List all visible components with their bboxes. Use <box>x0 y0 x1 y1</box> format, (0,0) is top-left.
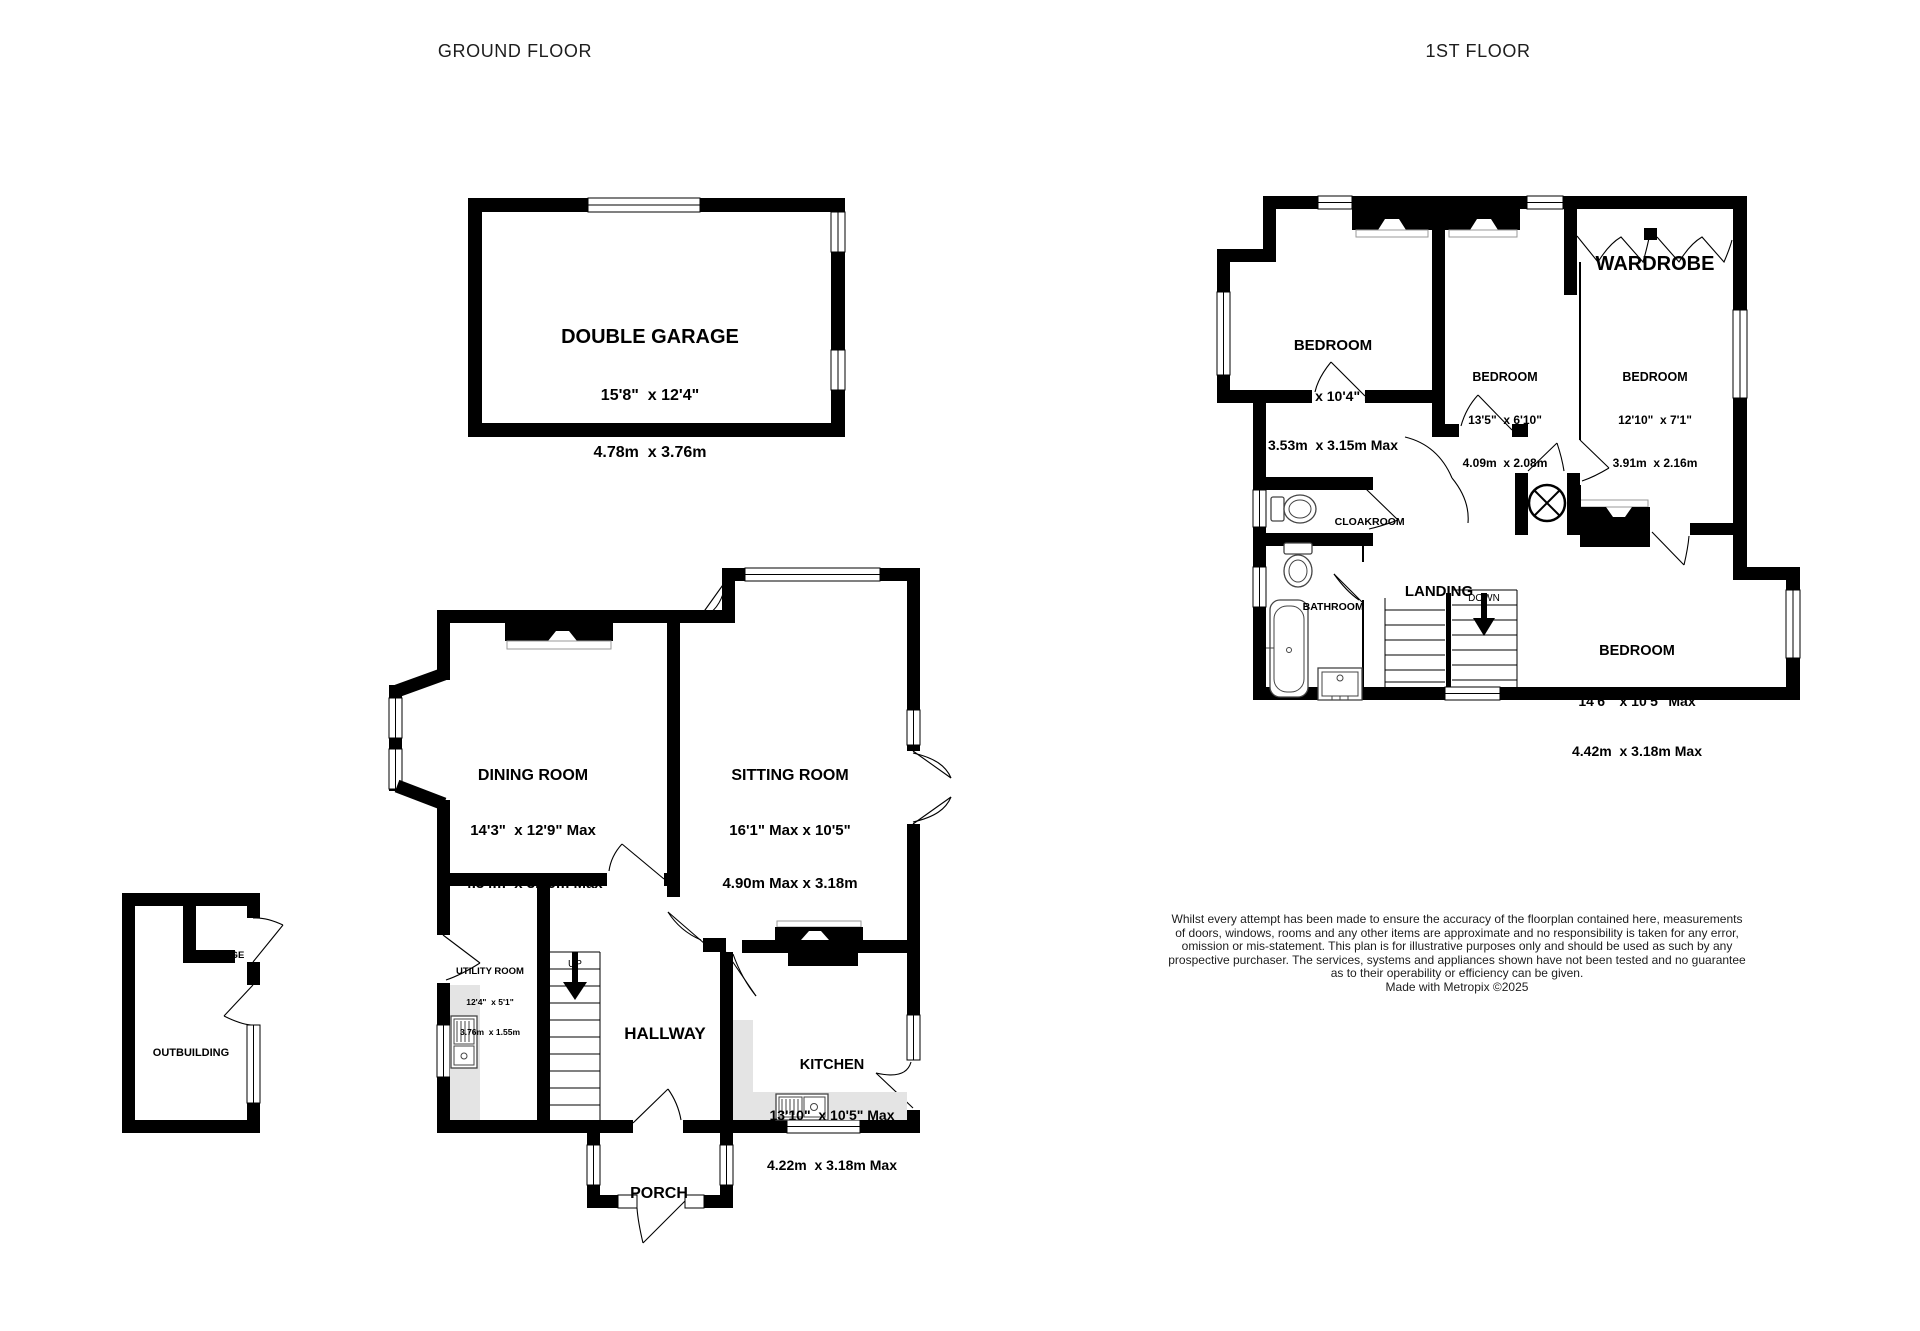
bedroom-2-label: BEDROOM 13'5" x 6'10" 4.09m x 2.08m <box>1463 342 1548 498</box>
disclaimer-line: as to their operability or efficiency ca… <box>1087 967 1827 981</box>
garage-metric: 4.78m x 3.76m <box>561 444 739 463</box>
bathroom-label: BATHROOM <box>1291 589 1364 625</box>
garage-imperial: 15'8" x 12'4" <box>561 387 739 406</box>
utility-room-label: UTILITY ROOM 12'4" x 5'1" 3.76m x 1.55m <box>456 946 524 1057</box>
bathroom-basin <box>1318 668 1362 700</box>
porch-label: PORCH <box>630 1147 688 1241</box>
bedroom-1-label: BEDROOM 11'7" x 10'4" Max 3.53m x 3.15m … <box>1268 304 1398 487</box>
bedroom-3-label: BEDROOM 12'10" x 7'1" 3.91m x 2.16m <box>1613 342 1698 498</box>
stairs-up-label: UP <box>568 935 582 994</box>
outbuilding-label: OUTBUILDING <box>153 1021 229 1086</box>
floorplan-page: GROUND FLOOR 1ST FLOOR DOUBLE GARAGE 15'… <box>0 0 1920 1331</box>
garage-name: DOUBLE GARAGE <box>561 326 739 350</box>
landing-chimney-breast <box>1578 507 1650 523</box>
bedroom-chimney-breast <box>1352 209 1520 230</box>
bathroom-toilet <box>1284 543 1312 587</box>
wardrobe-label: WARDROBE <box>1596 206 1715 324</box>
hallway-label: HALLWAY <box>624 984 706 1084</box>
dining-chimney-breast <box>505 623 613 641</box>
disclaimer-credit: Made with Metropix ©2025 <box>1087 981 1827 995</box>
dining-room-label: DINING ROOM 14'3" x 12'9" Max 4.34m x 3.… <box>463 732 602 928</box>
disclaimer-line: Whilst every attempt has been made to en… <box>1087 913 1827 927</box>
disclaimer-line: prospective purchaser. The services, sys… <box>1087 954 1827 968</box>
garage-label: DOUBLE GARAGE 15'8" x 12'4" 4.78m x 3.76… <box>561 288 739 500</box>
cloakroom-label: CLOAKROOM <box>1323 504 1405 540</box>
first-floor-title: 1ST FLOOR <box>1425 41 1530 62</box>
disclaimer-line: omission or mis-statement. This plan is … <box>1087 940 1827 954</box>
sitting-room-label: SITTING ROOM 16'1" Max x 10'5" 4.90m Max… <box>722 732 857 928</box>
cloakroom-toilet <box>1271 495 1316 523</box>
storage-label: STORAGE <box>198 928 245 984</box>
landing-label: LANDING <box>1405 548 1473 636</box>
kitchen-label: KITCHEN 13'10" x 10'5" Max 4.22m x 3.18m… <box>767 1024 897 1206</box>
ground-floor-title: GROUND FLOOR <box>438 41 592 62</box>
disclaimer-line: of doors, windows, rooms and any other i… <box>1087 927 1827 941</box>
disclaimer-text: Whilst every attempt has been made to en… <box>1087 913 1827 995</box>
bedroom-4-label: BEDROOM 14'6" x 10'5" Max 4.42m x 3.18m … <box>1572 610 1702 792</box>
sitting-chimney-breast <box>775 927 863 940</box>
stairs-down-label: DOWN <box>1468 569 1500 628</box>
